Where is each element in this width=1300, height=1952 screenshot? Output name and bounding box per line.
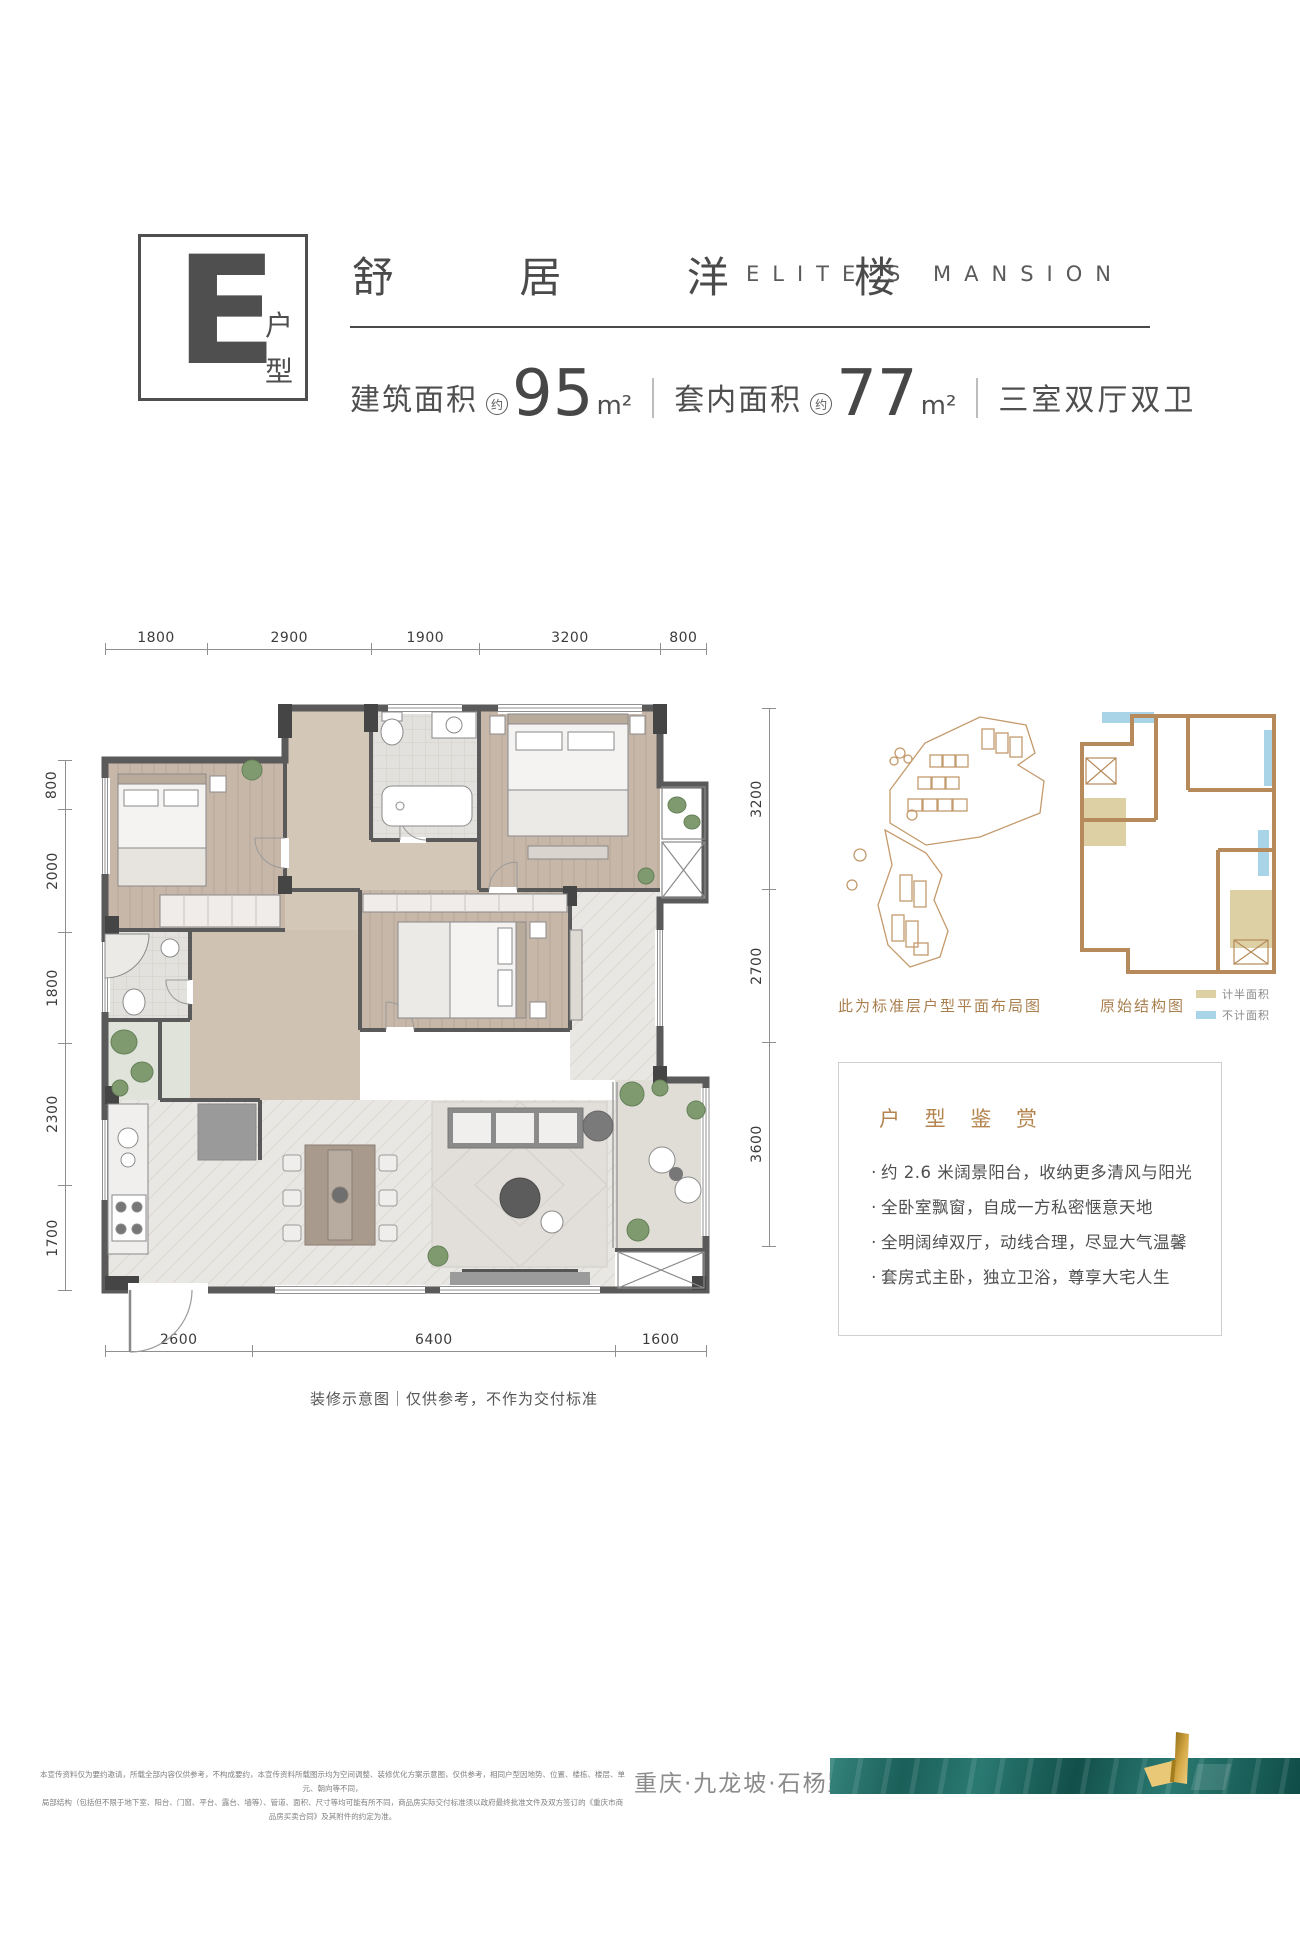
dim-label: 1800 <box>45 969 61 1007</box>
highlights-list: · 约 2.6 米阔景阳台，收纳更多清风与阳光 · 全卧室飘窗，自成一方私密惬意… <box>867 1155 1207 1295</box>
bullet-dot: · <box>867 1225 881 1260</box>
highlight-text: 全明阔绰双厅，动线合理，尽显大气温馨 <box>881 1225 1187 1260</box>
inner-area-value: 77 <box>836 362 917 426</box>
legend-swatch-excluded-area <box>1196 1011 1216 1019</box>
dim-line-left: 800 2000 1800 2300 1700 <box>40 760 66 1290</box>
dim-segment: 1900 <box>371 620 479 649</box>
brand-banner <box>830 1758 1300 1794</box>
dim-label: 3200 <box>749 780 765 818</box>
approx-circle: 约 <box>486 393 508 415</box>
dim-label: 2700 <box>749 947 765 985</box>
unit-letter: E <box>175 237 277 387</box>
dim-label: 3200 <box>551 630 589 649</box>
legend-label: 计半面积 <box>1222 986 1270 1002</box>
dim-label: 3600 <box>749 1125 765 1163</box>
bullet-dot: · <box>867 1190 881 1225</box>
disclaimer-line: 局部结构（包括但不限于地下室、阳台、门窗、平台、露台、墙等）、管道、面积、尺寸等… <box>40 1796 625 1824</box>
unit-type-label: 户型 <box>265 303 295 395</box>
page-title-en: ELITE'S MANSION <box>746 262 1124 286</box>
dim-label: 2900 <box>270 630 308 649</box>
dim-segment: 3600 <box>744 1042 769 1246</box>
dim-segment: 2300 <box>40 1043 65 1185</box>
dim-segment: 1700 <box>40 1185 65 1290</box>
legend-row: 不计面积 <box>1196 1007 1270 1023</box>
approx-circle: 约 <box>810 393 832 415</box>
divider-bar <box>652 378 654 418</box>
legend-row: 计半面积 <box>1196 986 1270 1002</box>
highlights-title: 户 型 鉴 赏 <box>879 1103 1046 1133</box>
highlight-item: · 全明阔绰双厅，动线合理，尽显大气温馨 <box>867 1225 1207 1260</box>
dim-label: 1700 <box>45 1219 61 1257</box>
build-area-label: 建筑面积 <box>350 375 478 419</box>
plan-caption: 装修示意图｜仅供参考，不作为交付标准 <box>310 1388 598 1409</box>
inner-area-unit: m² <box>921 391 957 421</box>
room-count-text: 三室双厅双卫 <box>998 375 1196 419</box>
site-plan-graphic <box>830 695 1070 995</box>
dim-segment: 2700 <box>744 889 769 1042</box>
build-area-value: 95 <box>512 362 593 426</box>
dim-segment: 1800 <box>105 620 207 649</box>
structure-diagram-graphic <box>1068 700 1300 995</box>
area-info-row: 建筑面积 约 95 m² 套内面积 约 77 m² 三室双厅双卫 <box>350 348 1196 426</box>
dim-label: 800 <box>669 630 697 649</box>
dim-label: 1800 <box>137 630 175 649</box>
project-location: 重庆·九龙坡·石杨路 <box>634 1764 853 1798</box>
area-legend: 计半面积 不计面积 <box>1196 986 1270 1023</box>
site-plan-caption: 此为标准层户型平面布局图 <box>838 995 1042 1016</box>
dim-segment: 3200 <box>744 708 769 889</box>
highlights-panel: 户 型 鉴 赏 · 约 2.6 米阔景阳台，收纳更多清风与阳光 · 全卧室飘窗，… <box>838 1062 1222 1336</box>
dim-segment: 3200 <box>479 620 660 649</box>
legal-disclaimer: 本宣传资料仅为要约邀请，所载全部内容仅供参考，不构成要约，本宣传资料所载图示均为… <box>40 1768 625 1824</box>
dim-label: 800 <box>45 771 61 799</box>
gold-ribbon-logo <box>1132 1732 1217 1792</box>
highlight-text: 约 2.6 米阔景阳台，收纳更多清风与阳光 <box>881 1155 1192 1190</box>
divider-bar <box>976 378 978 418</box>
highlight-item: · 约 2.6 米阔景阳台，收纳更多清风与阳光 <box>867 1155 1207 1190</box>
structure-caption: 原始结构图 <box>1100 995 1185 1016</box>
dim-label: 1900 <box>407 630 445 649</box>
title-divider <box>350 326 1150 328</box>
disclaimer-line: 本宣传资料仅为要约邀请，所载全部内容仅供参考，不构成要约，本宣传资料所载图示均为… <box>40 1768 625 1796</box>
bullet-dot: · <box>867 1260 881 1295</box>
dim-segment: 2000 <box>40 809 65 932</box>
dim-line-top: 1800 2900 1900 3200 800 <box>105 620 706 650</box>
build-area-unit: m² <box>596 391 632 421</box>
dim-label: 2000 <box>45 852 61 890</box>
highlight-text: 套房式主卧，独立卫浴，尊享大宅人生 <box>881 1260 1170 1295</box>
dim-label: 2300 <box>45 1096 61 1134</box>
inner-area-label: 套内面积 <box>674 375 802 419</box>
highlight-item: · 套房式主卧，独立卫浴，尊享大宅人生 <box>867 1260 1207 1295</box>
dim-segment: 2900 <box>207 620 371 649</box>
floor-plan-graphic <box>100 690 745 1358</box>
unit-badge: E 户型 <box>138 234 308 401</box>
bullet-dot: · <box>867 1155 881 1190</box>
dim-segment: 800 <box>661 620 706 649</box>
highlight-text: 全卧室飘窗，自成一方私密惬意天地 <box>881 1190 1153 1225</box>
legend-label: 不计面积 <box>1222 1007 1270 1023</box>
dim-line-right: 3200 2700 3600 <box>744 708 770 1246</box>
legend-swatch-half-area <box>1196 990 1216 998</box>
highlight-item: · 全卧室飘窗，自成一方私密惬意天地 <box>867 1190 1207 1225</box>
brochure-page: E 户型 舒 居 洋 楼 ELITE'S MANSION 建筑面积 约 95 m… <box>0 0 1300 1952</box>
dim-segment: 800 <box>40 760 65 809</box>
dim-segment: 1800 <box>40 933 65 1044</box>
